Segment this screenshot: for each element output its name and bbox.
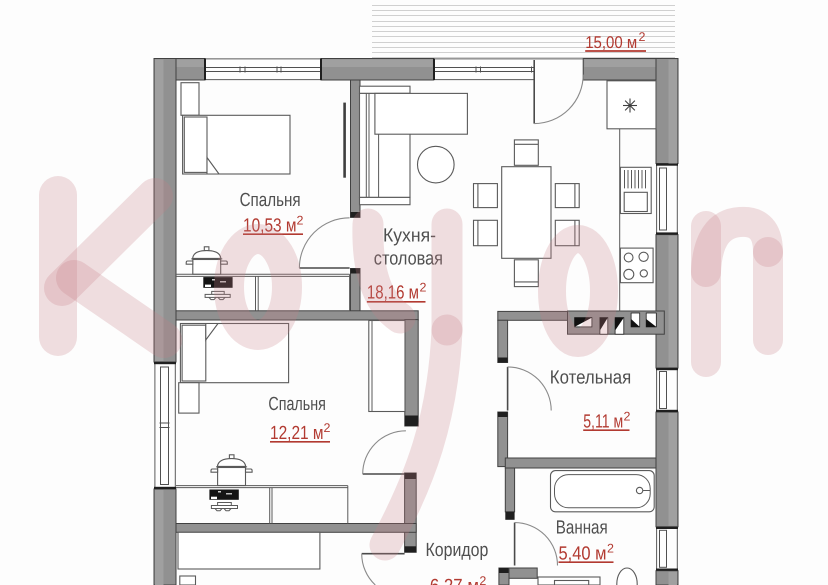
svg-text:2: 2 [639,30,646,44]
svg-text:Котельная: Котельная [550,368,631,389]
svg-text:2: 2 [607,542,614,556]
svg-text:2: 2 [624,410,631,424]
svg-text:Ванная: Ванная [556,518,608,539]
svg-text:18,16 м: 18,16 м [367,283,419,304]
svg-text:5,40 м: 5,40 м [559,544,607,565]
svg-text:Коридор: Коридор [426,540,489,561]
svg-text:столовая: столовая [374,249,443,270]
svg-text:15,00 м: 15,00 м [585,33,637,52]
svg-text:6,27 м: 6,27 м [430,576,479,585]
svg-text:2: 2 [420,281,427,295]
svg-text:Спальня: Спальня [240,190,301,211]
svg-text:Спальня: Спальня [268,394,326,415]
svg-text:2: 2 [297,214,304,228]
svg-text:Кухня-: Кухня- [383,226,436,247]
svg-text:12,21 м: 12,21 м [270,423,324,444]
svg-text:2: 2 [479,574,486,585]
svg-text:2: 2 [324,421,331,435]
